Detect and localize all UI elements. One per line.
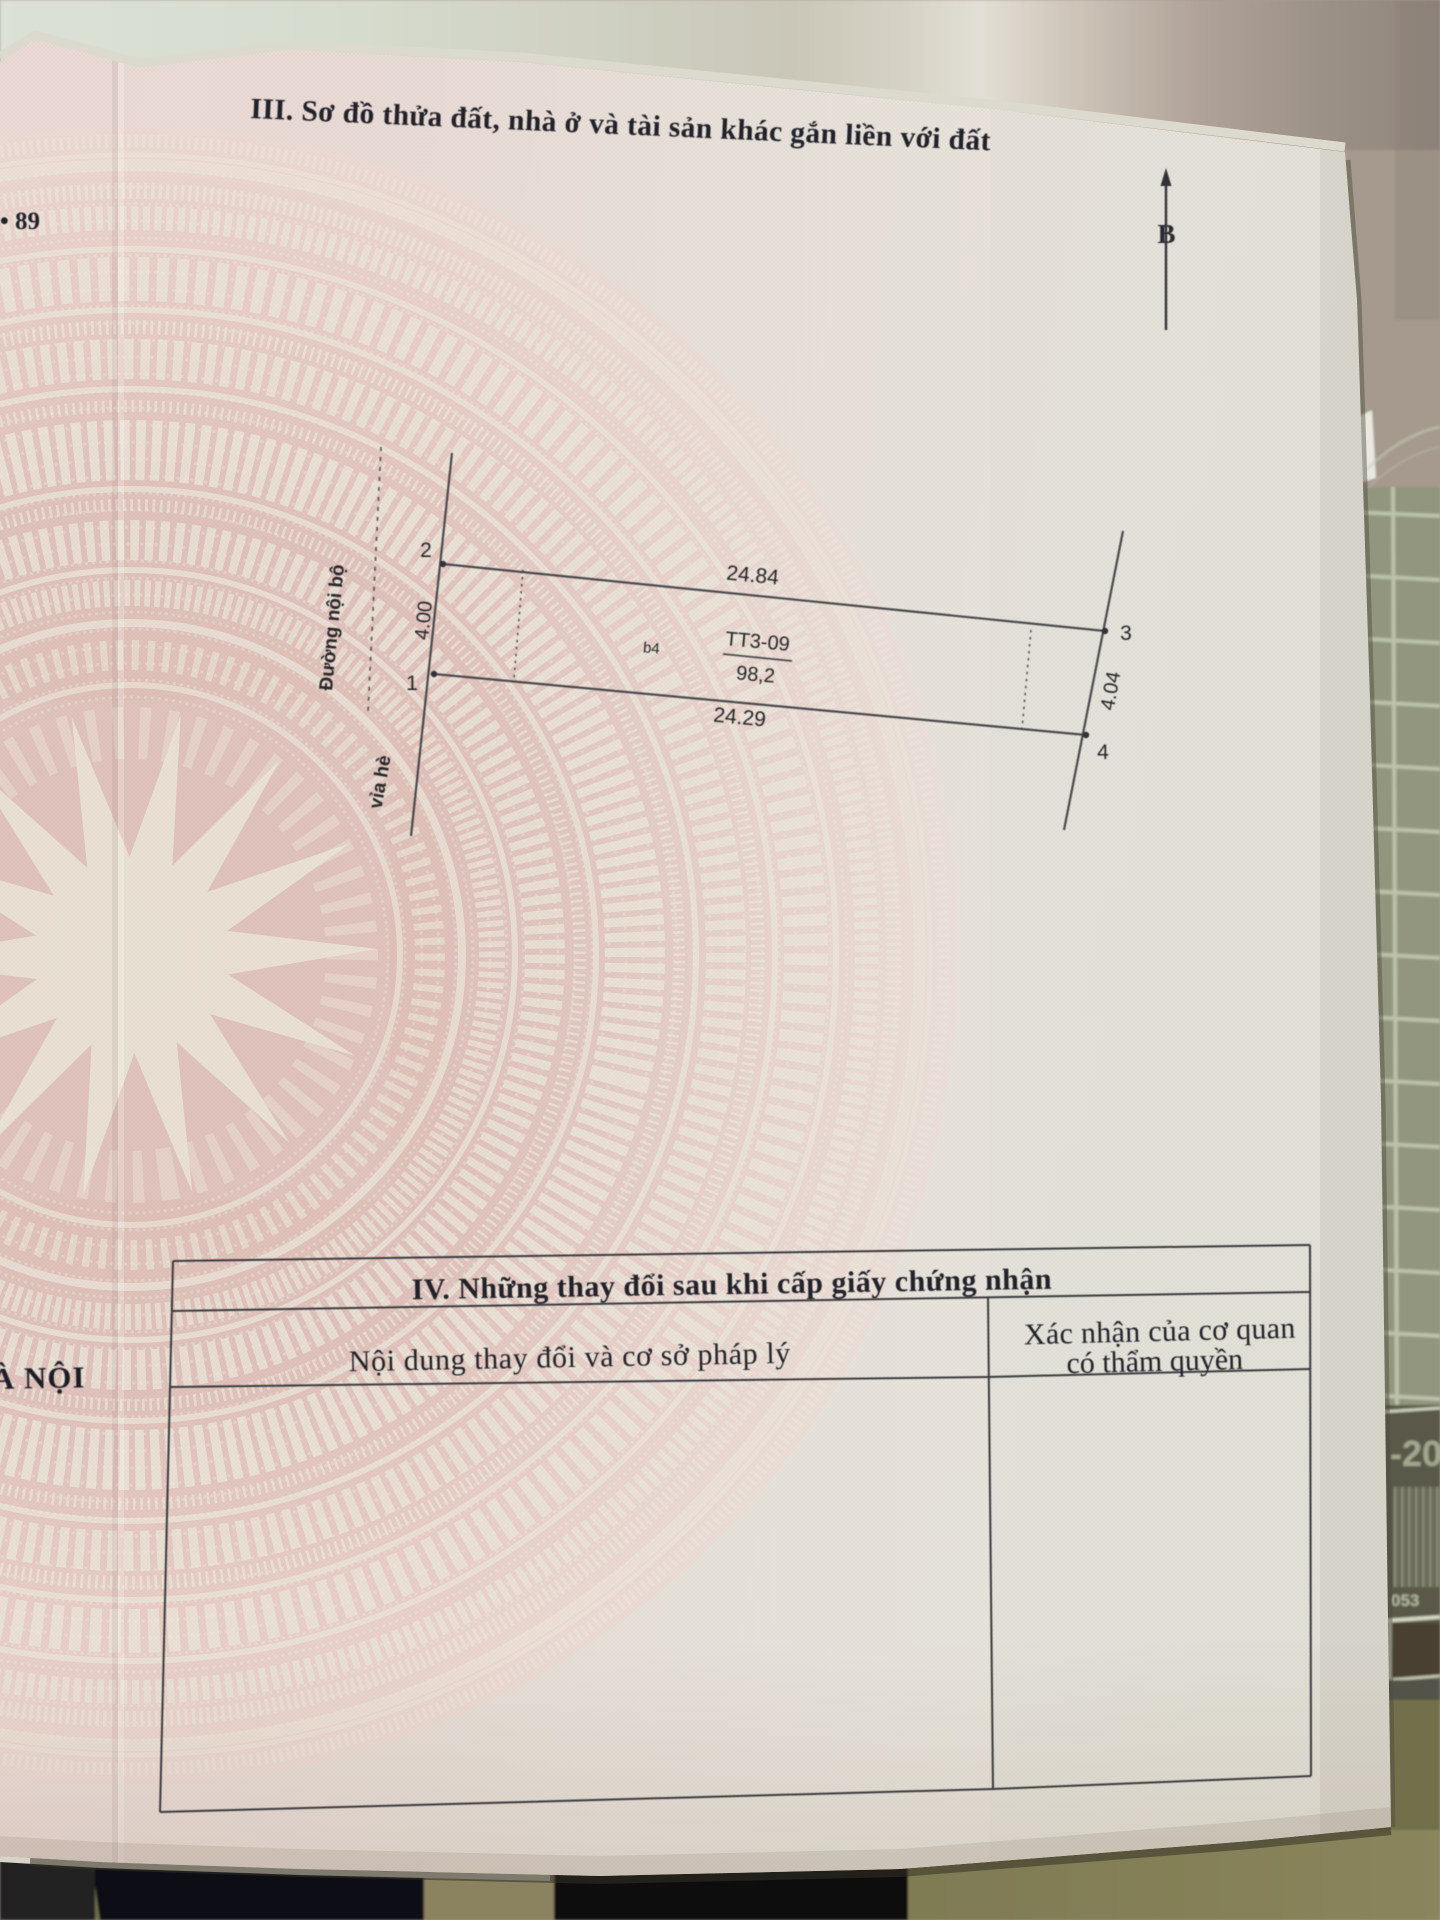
- svg-text:• 89: • 89: [0, 208, 40, 235]
- svg-text:B: B: [1157, 219, 1175, 249]
- svg-text:có thẩm quyền: có thẩm quyền: [1066, 1343, 1243, 1380]
- svg-text:À NỘI: À NỘI: [0, 1359, 86, 1396]
- svg-text:b4: b4: [642, 639, 660, 657]
- svg-text:2: 2: [420, 539, 432, 562]
- svg-text:1: 1: [406, 672, 418, 695]
- svg-text:-20: -20: [1390, 1433, 1440, 1474]
- svg-text:4: 4: [1097, 741, 1109, 764]
- svg-text:053: 053: [1391, 1591, 1419, 1610]
- svg-text:3: 3: [1120, 622, 1132, 645]
- svg-text:4.00: 4.00: [411, 600, 437, 641]
- svg-text:98,2: 98,2: [735, 662, 776, 687]
